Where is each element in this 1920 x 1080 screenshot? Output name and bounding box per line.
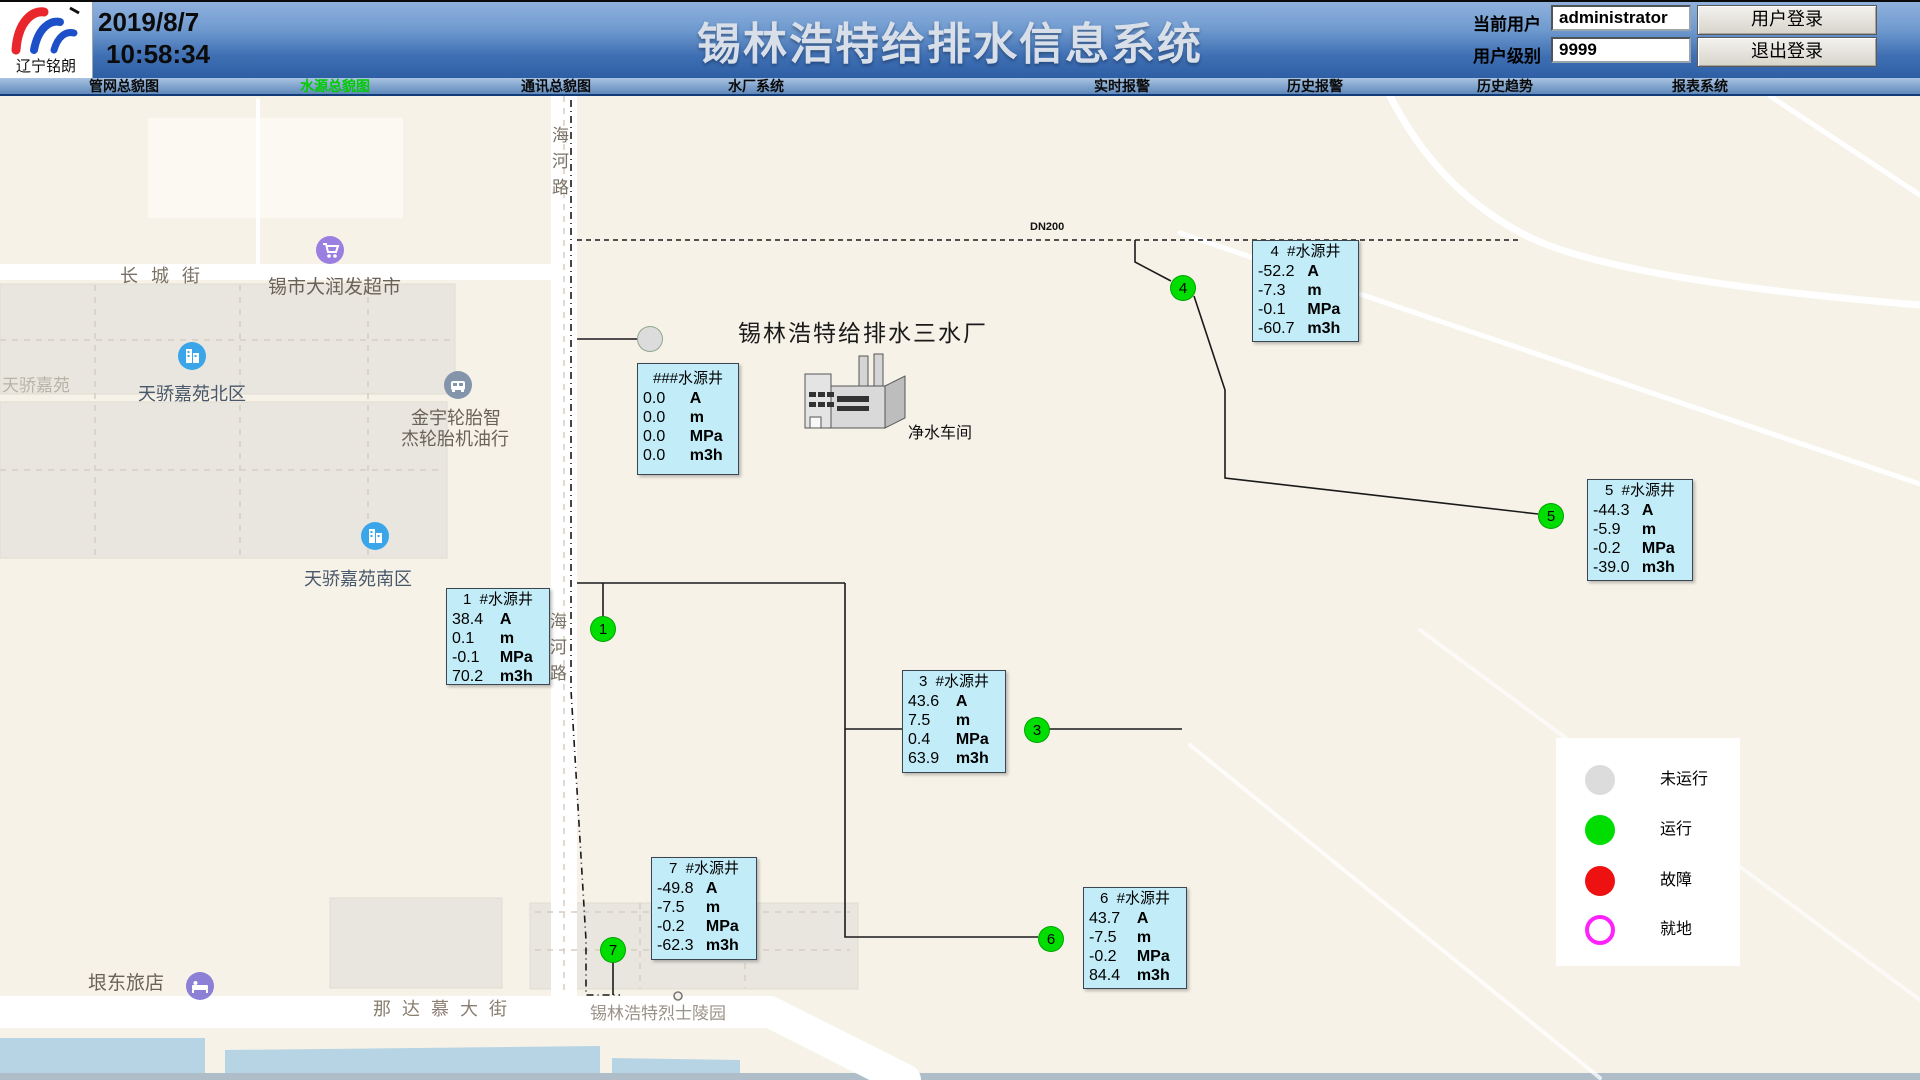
well-title: 3 #水源井 [908,672,1000,692]
well-row: 43.7A [1089,909,1181,928]
street-label-nadamu: 那 达 慕 大 街 [373,995,510,1021]
well-row: -60.7m3h [1258,319,1353,338]
poi-label-tianjiao-north: 天骄嘉苑北区 [138,380,246,406]
workshop-label: 净水车间 [908,419,972,443]
well-row: 0.0m3h [643,446,733,465]
well-row: -0.2MPa [657,917,751,936]
well-data-box-7[interactable]: 7 #水源井 -49.8A -7.5m -0.2MPa -62.3m3h [651,857,757,960]
well-data-box-5[interactable]: 5 #水源井 -44.3A -5.9m -0.2MPa -39.0m3h [1587,479,1693,581]
pipe-diameter-label: DN200 [1030,221,1064,233]
residence-icon-south [361,522,389,550]
street-label-changchengjie: 长 城 街 [120,262,204,288]
well-row: -7.3m [1258,281,1353,300]
well-row: 0.0MPa [643,427,733,446]
well-row: 0.0m [643,408,733,427]
well-title: 4 #水源井 [1258,242,1353,262]
well-marker-7[interactable]: 7 [600,937,626,963]
well-row: -44.3A [1593,501,1687,520]
hotel-bed-icon [186,972,214,1000]
well-row: -7.5m [657,898,751,917]
login-button[interactable]: 用户登录 [1697,5,1877,35]
shopping-cart-icon [316,236,344,264]
car-service-icon [444,371,472,399]
well-data-box-6[interactable]: 6 #水源井 43.7A -7.5m -0.2MPa 84.4m3h [1083,887,1187,989]
well-row: -39.0m3h [1593,558,1687,577]
legend-stopped-label: 未运行 [1660,765,1708,795]
user-level-label: 用户级别 [1473,42,1541,67]
well-row: 84.4m3h [1089,966,1181,985]
factory-icon [805,354,905,428]
well-row: -62.3m3h [657,936,751,955]
datetime-display: 2019/8/710:58:34 [98,6,210,70]
company-logo: 辽宁铭朗 [0,0,93,78]
plant-title: 锡林浩特给排水三水厂 [738,314,988,348]
scada-window: 长 城 街 锡市大润发超市 天骄嘉苑 天骄嘉苑北区 金宇轮胎智 杰轮胎机油行 天… [0,0,1920,1080]
tab-history-alarm[interactable]: 历史报警 [1287,78,1343,94]
well-row: 0.4MPa [908,730,1000,749]
legend-stopped-icon [1585,765,1615,795]
company-name: 辽宁铭朗 [0,55,92,76]
status-legend: 未运行 运行 故障 就地 [1556,738,1740,966]
title-bar: 锡林浩特给排水信息系统 辽宁铭朗 2019/8/710:58:34 当前用户 用… [0,0,1920,78]
tab-pipe-network-overview[interactable]: 管网总貌图 [89,78,159,94]
legend-fault-label: 故障 [1660,866,1692,896]
well-marker-6[interactable]: 6 [1038,926,1064,952]
well-marker-5[interactable]: 5 [1538,503,1564,529]
well-row: -0.1MPa [452,648,544,667]
well-marker-hash[interactable] [637,326,663,352]
legend-running-icon [1585,815,1615,845]
well-row: 0.0A [643,389,733,408]
legend-running-label: 运行 [1660,815,1692,845]
tab-water-source-overview[interactable]: 水源总貌图 [300,78,370,94]
poi-label-hotel: 垠东旅店 [88,968,164,995]
app-title: 锡林浩特给排水信息系统 [560,8,1340,72]
well-row: 43.6A [908,692,1000,711]
date-text: 2019/8/7 [98,7,199,37]
pipeline-trunk [571,100,620,995]
window-top-border [0,0,1920,2]
well-row: 63.9m3h [908,749,1000,768]
residence-icon-north [178,342,206,370]
poi-label-supermarket: 锡市大润发超市 [268,272,401,299]
legend-fault-icon [1585,866,1615,896]
well-title: 5 #水源井 [1593,481,1687,501]
legend-local-label: 就地 [1660,915,1692,945]
street-label-haihe-road-top: 海河路 [546,126,571,204]
tab-water-plant-system[interactable]: 水厂系统 [728,78,784,94]
well-title: 1 #水源井 [452,590,544,610]
well-data-box-1[interactable]: 1 #水源井 38.4A 0.1m -0.1MPa 70.2m3h [446,588,550,685]
well-data-box-hash[interactable]: ###水源井 0.0A 0.0m 0.0MPa 0.0m3h [637,363,739,475]
well-title: 7 #水源井 [657,859,751,879]
well-row: -49.8A [657,879,751,898]
poi-label-jinyu-line2: 杰轮胎机油行 [401,425,509,451]
well-data-box-3[interactable]: 3 #水源井 43.6A 7.5m 0.4MPa 63.9m3h [902,670,1006,773]
well-row: -0.1MPa [1258,300,1353,319]
district-label-tianjiao: 天骄嘉苑 [2,371,70,396]
legend-local-icon [1585,915,1615,945]
user-level-input[interactable] [1551,37,1691,63]
main-nav: 管网总貌图 水源总貌图 通讯总貌图 水厂系统 实时报警 历史报警 历史趋势 报表… [0,78,1920,96]
poi-label-tianjiao-south: 天骄嘉苑南区 [304,565,412,591]
well-row: 70.2m3h [452,667,544,686]
well-marker-4[interactable]: 4 [1170,275,1196,301]
well-row: -5.9m [1593,520,1687,539]
well-marker-3[interactable]: 3 [1024,717,1050,743]
current-user-input[interactable] [1551,5,1691,31]
current-user-label: 当前用户 [1473,10,1541,35]
well-row: -0.2MPa [1089,947,1181,966]
well-title: ###水源井 [643,369,733,389]
tab-report-system[interactable]: 报表系统 [1672,78,1728,94]
tab-communication-overview[interactable]: 通讯总貌图 [521,78,591,94]
tab-realtime-alarm[interactable]: 实时报警 [1094,78,1150,94]
well-data-box-4[interactable]: 4 #水源井 -52.2A -7.3m -0.1MPa -60.7m3h [1252,240,1359,342]
poi-label-martyrs-cemetery: 锡林浩特烈士陵园 [590,999,726,1024]
tab-history-trend[interactable]: 历史趋势 [1477,78,1533,94]
logo-mark-icon [0,0,92,58]
well-row: -7.5m [1089,928,1181,947]
well-row: 0.1m [452,629,544,648]
map-water [0,1038,1920,1080]
well-marker-1[interactable]: 1 [590,616,616,642]
well-row: -52.2A [1258,262,1353,281]
logout-button[interactable]: 退出登录 [1697,37,1877,67]
well-row: 7.5m [908,711,1000,730]
well-row: -0.2MPa [1593,539,1687,558]
well-title: 6 #水源井 [1089,889,1181,909]
well-row: 38.4A [452,610,544,629]
time-text: 10:58:34 [98,39,210,69]
